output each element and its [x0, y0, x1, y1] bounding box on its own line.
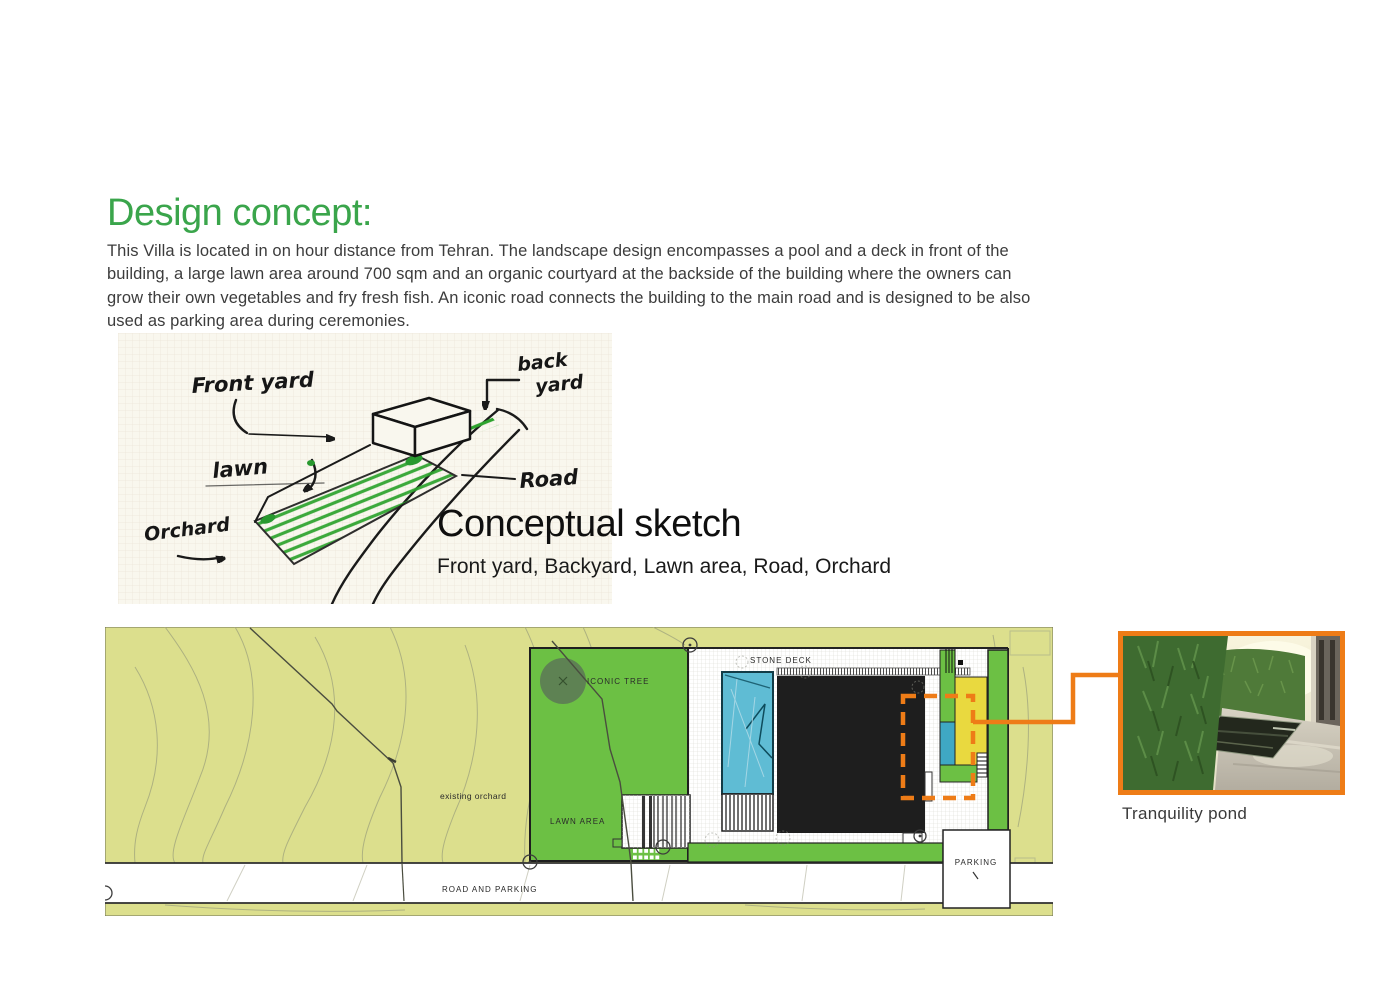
lawn-planter — [613, 839, 622, 847]
deck-green-band — [688, 843, 943, 862]
plan-label-road-and-parking: ROAD AND PARKING — [442, 885, 537, 894]
lawn-stairs-grid — [622, 795, 690, 848]
plan-label-iconic-tree: ICONIC TREE — [587, 677, 649, 686]
sketch-label-road: Road — [519, 465, 580, 493]
plan-label-existing-orchard: existing orchard — [440, 791, 506, 801]
presentation-page: Design concept: This Villa is located in… — [0, 0, 1400, 989]
courtyard-column — [958, 660, 963, 665]
parking-area — [943, 830, 1010, 908]
courtyard-pond — [940, 722, 955, 768]
sketch-heading-block: Conceptual sketch Front yard, Backyard, … — [437, 503, 891, 579]
site-plan-drawing: STONE DECK ICONIC TREE existing orchard … — [105, 627, 1053, 916]
intro-paragraph: This Villa is located in on hour distanc… — [107, 240, 1051, 333]
sketch-heading: Conceptual sketch — [437, 503, 891, 546]
sketch-label-lawn: lawn — [211, 454, 269, 483]
road-strip — [105, 863, 1053, 903]
stair-bar — [649, 796, 652, 848]
courtyard-green-strip — [940, 650, 955, 722]
plan-label-lawn-area: LAWN AREA — [550, 817, 605, 826]
stair-bar — [642, 796, 645, 848]
plan-label-stone-deck: STONE DECK — [750, 656, 812, 665]
pond-photo-illustration — [1123, 636, 1340, 790]
plan-label-parking: PARKING — [955, 858, 997, 867]
highlight-connector — [965, 655, 1130, 735]
photo-caption: Tranquility pond — [1122, 804, 1247, 824]
tranquility-pond-photo — [1118, 631, 1345, 795]
sketch-subheading: Front yard, Backyard, Lawn area, Road, O… — [437, 555, 891, 579]
page-title: Design concept: — [107, 192, 372, 235]
